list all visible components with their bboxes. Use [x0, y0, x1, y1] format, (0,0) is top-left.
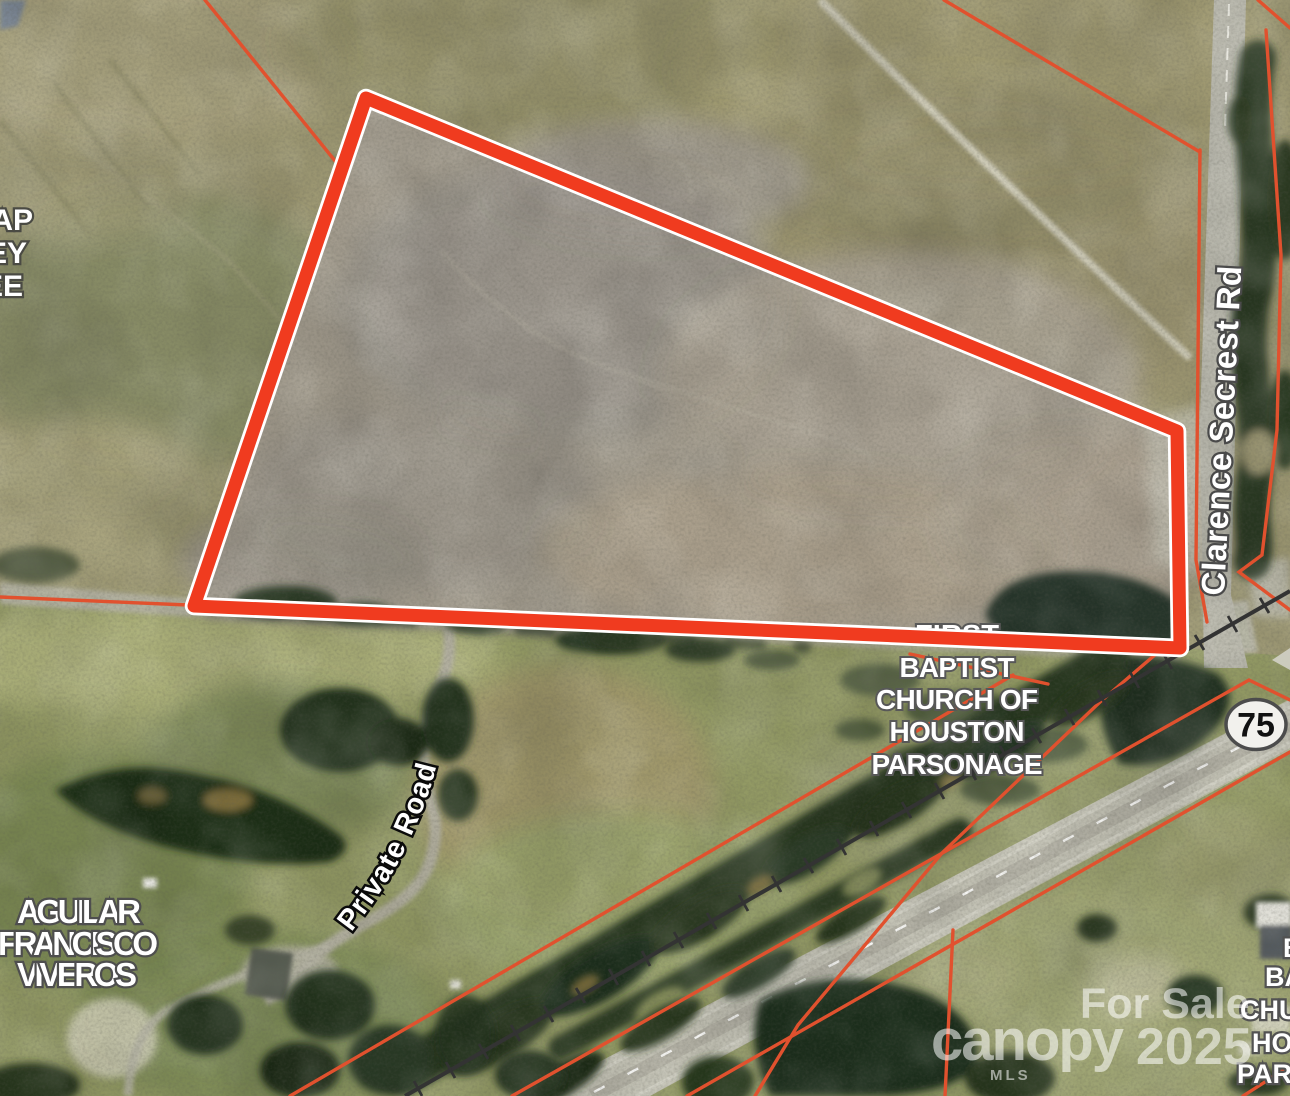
svg-text:BAPTIST: BAPTIST: [1283, 933, 1290, 963]
svg-text:HOUSTON: HOUSTON: [1252, 1028, 1290, 1058]
svg-text:BAPTIST: BAPTIST: [900, 652, 1015, 683]
svg-text:2025: 2025: [1136, 1018, 1252, 1076]
svg-text:EY: EY: [0, 237, 27, 270]
svg-text:canopy: canopy: [931, 1008, 1124, 1073]
svg-text:HOUSTON: HOUSTON: [890, 716, 1025, 747]
svg-text:VIVEROS: VIVEROS: [17, 956, 137, 993]
svg-text:75: 75: [1237, 707, 1275, 745]
svg-text:EE: EE: [0, 270, 23, 303]
svg-text:PARSONAGE: PARSONAGE: [872, 749, 1043, 780]
svg-text:CHURCH OF: CHURCH OF: [876, 684, 1038, 715]
svg-text:AP: AP: [0, 204, 33, 237]
svg-text:BAPTIST: BAPTIST: [1265, 962, 1290, 992]
svg-text:MLS: MLS: [990, 1067, 1031, 1084]
